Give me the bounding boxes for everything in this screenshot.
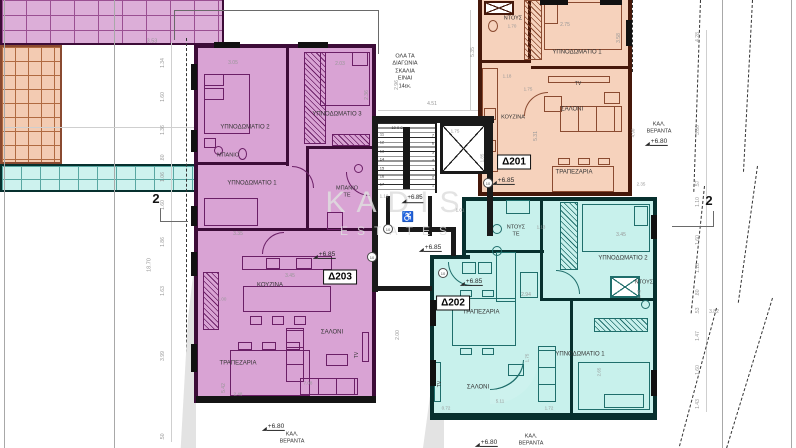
wardrobe-hatch [304, 52, 326, 144]
d203-wall-1 [198, 162, 288, 165]
fridge [520, 272, 538, 298]
stool [250, 316, 262, 325]
dim-left-1-86: 1.86 [160, 237, 166, 247]
section-marker-left: 2 [152, 191, 159, 207]
setback-line-top-v2 [378, 10, 379, 54]
dim-right-53: .53 [695, 308, 701, 315]
fridge-counter [203, 272, 219, 330]
window [191, 344, 197, 372]
wardrobe-hatch [560, 202, 578, 270]
stool [294, 316, 306, 325]
d203-bottom-wall [196, 396, 376, 403]
boundary-dashed-right-1a [693, 0, 701, 192]
section-leader-right-v [713, 211, 714, 227]
d202-wall-3 [543, 298, 653, 301]
chair [238, 342, 252, 350]
shower-tray [506, 200, 530, 214]
dim-right-57: .57 [695, 181, 701, 188]
room-label-d201-veranda: ΚΑΛ. ΒΕΡΑΝΤΑ [647, 121, 672, 134]
dim-chain-right [706, 30, 707, 412]
window [191, 64, 197, 90]
dim-2-35: 2.35 [637, 181, 646, 186]
sofa [560, 106, 622, 132]
elevation-d202-veranda: +6.80 [480, 439, 498, 447]
setback-line-top-h [174, 10, 378, 11]
stool [272, 316, 284, 325]
dim-right-1-47: 1.47 [695, 331, 701, 341]
sofa [538, 346, 556, 402]
dim-right-1-10: 1.10 [695, 197, 701, 207]
chair [460, 290, 472, 297]
pillow [204, 88, 224, 100]
window [651, 370, 657, 396]
d201-wall-3 [531, 66, 629, 69]
toilet [238, 148, 247, 160]
sink [214, 146, 223, 155]
dim-4-51: 4.51 [427, 101, 437, 107]
section-leader-right-h [672, 226, 714, 227]
chair [578, 158, 590, 165]
window [191, 206, 197, 226]
pillow [544, 4, 558, 24]
dim-2-96: 2.96 [394, 80, 400, 90]
boundary-dashed-top-right [632, 0, 633, 72]
dim-right-1-43: 1.43 [695, 399, 701, 409]
d201-wall-1 [482, 60, 530, 63]
window [191, 252, 197, 276]
window [626, 20, 632, 46]
section-leader-left-h [160, 221, 188, 222]
toilet [488, 20, 498, 32]
boundary-dashed-right-2c [725, 298, 773, 448]
window [214, 42, 240, 48]
kitchen-counter [496, 252, 516, 302]
lobby-bottom-wall [372, 286, 432, 291]
tv-unit [362, 332, 369, 362]
chair [460, 348, 472, 355]
dim-line-353 [5, 127, 205, 128]
boundary-dashed-right-2b [738, 166, 758, 303]
window [298, 42, 328, 48]
dim-left-1-60a: 1.60 [160, 92, 166, 102]
elevation-lobby: +6.85 [424, 244, 442, 252]
window [191, 130, 197, 152]
road-line-right-outer [791, 0, 792, 448]
dim-2-00: 2.00 [395, 330, 401, 340]
dining-table [552, 166, 614, 192]
side-table [604, 92, 620, 104]
pillow [634, 206, 648, 226]
watermark-line1: KADIS [292, 186, 504, 220]
chair [482, 348, 494, 355]
coffee-table [326, 354, 348, 366]
boundary-dashed-right-2a [743, 0, 753, 172]
apartment-d201-veranda [0, 45, 62, 164]
chair [262, 342, 276, 350]
dim-line-535 [470, 10, 471, 110]
kitchen-sink [296, 258, 312, 269]
dining-table [452, 298, 516, 346]
sofa [286, 328, 304, 382]
elevation-d201-veranda: +6.80 [650, 138, 668, 146]
kitchen-counter [242, 256, 332, 270]
dim-left-1-34: 1.34 [160, 58, 166, 68]
wardrobe-hatch [524, 0, 542, 60]
wardrobe-hatch [594, 318, 648, 332]
stair-stringer [403, 127, 410, 189]
kitchen-island [243, 286, 331, 312]
pillow [204, 74, 224, 86]
chair [598, 158, 610, 165]
room-label-d202-veranda: ΚΑΛ. ΒΕΡΑΝΤΑ [519, 433, 544, 446]
d202-bottom-wall [432, 413, 656, 420]
coffee-table [508, 364, 524, 376]
wardrobe-hatch [332, 134, 370, 146]
window [600, 0, 622, 5]
pillow [352, 52, 368, 66]
road-line-right-inner [722, 0, 723, 448]
road-line-left-outer [4, 0, 5, 448]
cooktop [266, 258, 280, 269]
sofa [300, 378, 358, 395]
dim-left-50: .50 [160, 434, 166, 441]
chair [558, 158, 570, 165]
floor-plan-canvas: KADIS ESTATES ΥΠΝΟΔΩΜΑΤΙΟ 2ΥΠΝΟΔΩΜΑΤΙΟ 3… [0, 0, 796, 448]
dim-left-80: .80 [160, 155, 166, 162]
shaft-xbox [484, 1, 514, 15]
dim-chain-left [171, 42, 172, 442]
dim-right-80: .80 [695, 290, 701, 297]
bed [204, 198, 258, 226]
stair-note: ΟΛΑ ΤΑ ΔΙΑΓΩΝΙΑ ΣΚΑΛΙΑ ΕΙΝΑΙ 14εκ. [392, 53, 417, 90]
pillow [604, 394, 644, 408]
dim-left-1-63: 1.63 [160, 286, 166, 296]
apartment-d203-veranda [0, 0, 224, 45]
dim-line-451 [378, 110, 490, 111]
d202-wall-4 [570, 301, 573, 416]
boundary-dashed-right-1c [678, 308, 717, 448]
d203-wall-2 [286, 48, 289, 166]
tv-unit [548, 76, 610, 83]
watermark: KADIS ESTATES [292, 186, 504, 238]
window [651, 215, 657, 239]
core-top-wall [372, 116, 494, 123]
window [430, 360, 436, 386]
chair [482, 290, 494, 297]
closet-xbox [610, 276, 640, 298]
kitchen-sink [478, 262, 492, 274]
elevation-d203-veranda: +6.80 [267, 423, 285, 431]
section-leader-left-v [160, 208, 161, 222]
d203-wall-5 [306, 146, 372, 149]
boundary-dashed-right-1b [691, 186, 705, 313]
room-label-d203-veranda: ΚΑΛ. ΒΕΡΑΝΤΑ [280, 431, 305, 444]
window [540, 0, 568, 5]
apartment-d202-veranda [0, 164, 214, 192]
dim-left-3-99: 3.99 [160, 351, 166, 361]
window [430, 300, 436, 326]
dim-left-18-70: 18.70 [147, 258, 154, 272]
sink [641, 300, 650, 309]
road-line-left-inner [114, 0, 115, 448]
watermark-line2: ESTATES [292, 224, 504, 238]
elevator-shaft [440, 123, 487, 174]
setback-line-top-v1 [174, 10, 175, 40]
